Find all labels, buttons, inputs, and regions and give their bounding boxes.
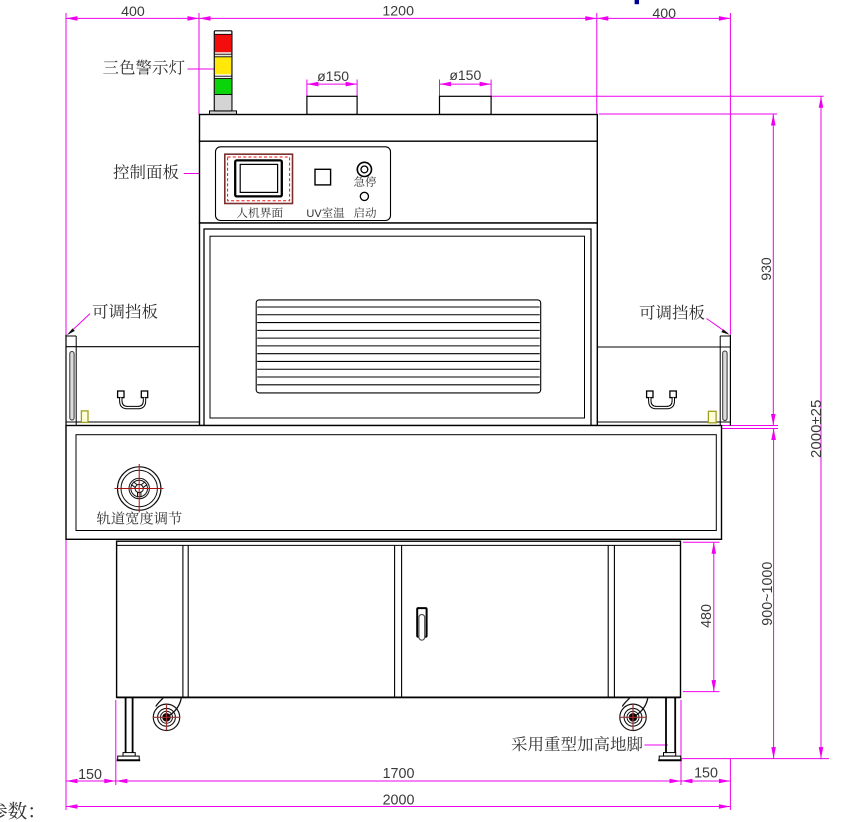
svg-text:1200: 1200	[382, 4, 414, 20]
svg-text:480: 480	[699, 604, 715, 628]
svg-text:2000±25: 2000±25	[808, 400, 825, 458]
svg-text:930: 930	[758, 257, 774, 281]
svg-text:400: 400	[121, 4, 145, 20]
svg-text:400: 400	[652, 6, 676, 22]
svg-text:900~1000: 900~1000	[760, 562, 776, 626]
svg-text:2000: 2000	[383, 792, 415, 808]
svg-text:150: 150	[694, 766, 718, 782]
svg-text:1700: 1700	[383, 766, 415, 782]
svg-text:UV: UV	[306, 208, 322, 220]
svg-text:ø150: ø150	[317, 68, 349, 84]
svg-text:150: 150	[78, 767, 102, 783]
svg-text:ø150: ø150	[449, 67, 481, 83]
